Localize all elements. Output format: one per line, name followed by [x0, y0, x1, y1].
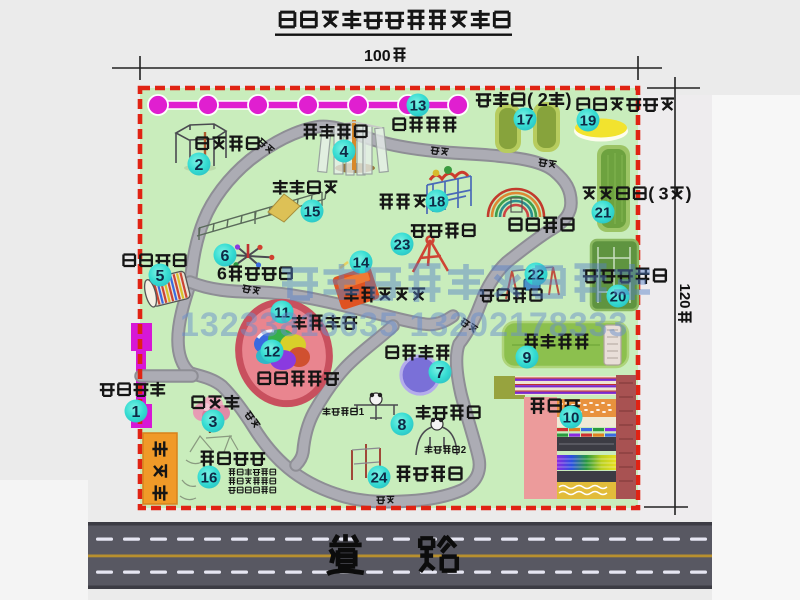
svg-text:100: 100 [364, 48, 391, 65]
svg-text:): ) [565, 89, 571, 110]
svg-text:13233816635 13202178333: 13233816635 13202178333 [180, 306, 628, 344]
svg-text:(: ( [648, 184, 654, 204]
svg-text:19: 19 [580, 112, 597, 129]
svg-text:120: 120 [676, 283, 693, 308]
svg-text:2: 2 [538, 89, 548, 110]
svg-text:18: 18 [429, 193, 446, 210]
svg-text:3: 3 [209, 414, 218, 431]
svg-text:5: 5 [156, 268, 165, 285]
svg-text:17: 17 [517, 111, 534, 128]
svg-text:13: 13 [410, 97, 427, 114]
svg-text:): ) [686, 184, 692, 204]
svg-text:3: 3 [659, 184, 669, 204]
svg-text:(: ( [527, 89, 534, 110]
svg-text:16: 16 [201, 469, 218, 486]
svg-text:7: 7 [436, 365, 445, 382]
svg-text:21: 21 [595, 204, 612, 221]
svg-text:9: 9 [523, 350, 532, 367]
svg-text:1: 1 [359, 407, 365, 418]
svg-text:23: 23 [394, 236, 411, 253]
svg-text:1: 1 [132, 404, 141, 421]
svg-text:24: 24 [371, 469, 388, 486]
svg-text:10: 10 [563, 409, 580, 426]
svg-text:6: 6 [221, 248, 230, 265]
svg-text:4: 4 [340, 144, 349, 161]
svg-text:6: 6 [217, 264, 227, 284]
svg-text:8: 8 [398, 417, 407, 434]
svg-text:15: 15 [304, 203, 321, 220]
svg-text:12: 12 [264, 343, 281, 360]
svg-text:2: 2 [461, 445, 466, 456]
svg-text:2: 2 [195, 157, 204, 174]
